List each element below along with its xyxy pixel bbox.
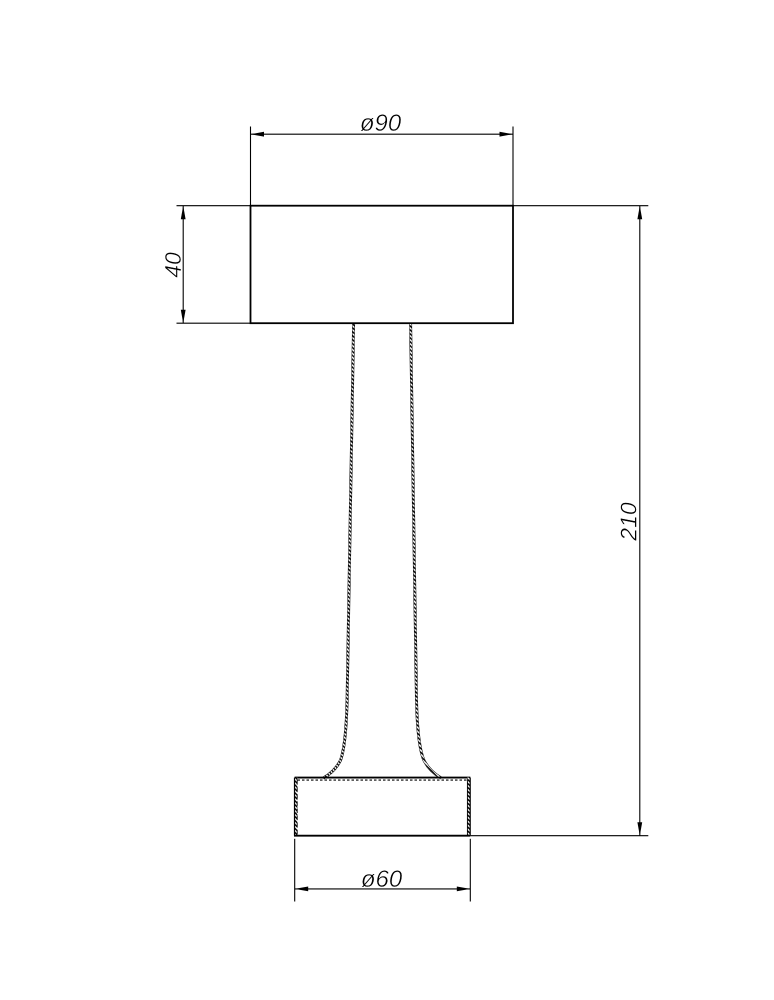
svg-text:40: 40 <box>160 252 186 278</box>
svg-text:ø60: ø60 <box>361 866 403 893</box>
svg-text:210: 210 <box>615 502 641 542</box>
svg-text:ø90: ø90 <box>360 110 402 137</box>
